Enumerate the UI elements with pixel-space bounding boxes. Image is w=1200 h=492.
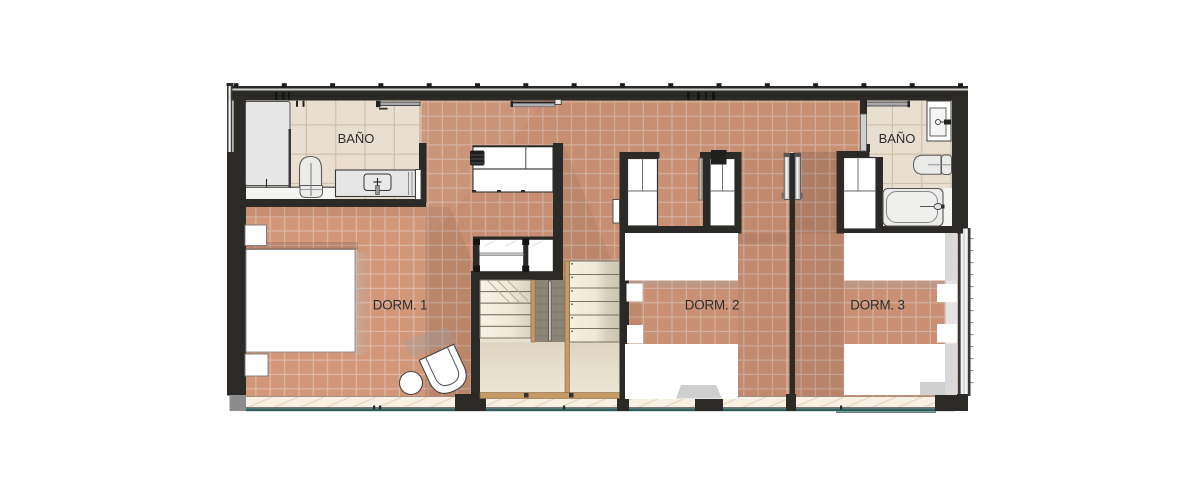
svg-text:DORM. 2: DORM. 2 xyxy=(685,298,739,313)
svg-text:BAÑO: BAÑO xyxy=(879,131,916,146)
svg-text:BAÑO: BAÑO xyxy=(338,131,375,146)
svg-text:DORM. 1: DORM. 1 xyxy=(373,298,427,313)
svg-text:DORM. 3: DORM. 3 xyxy=(850,298,904,313)
